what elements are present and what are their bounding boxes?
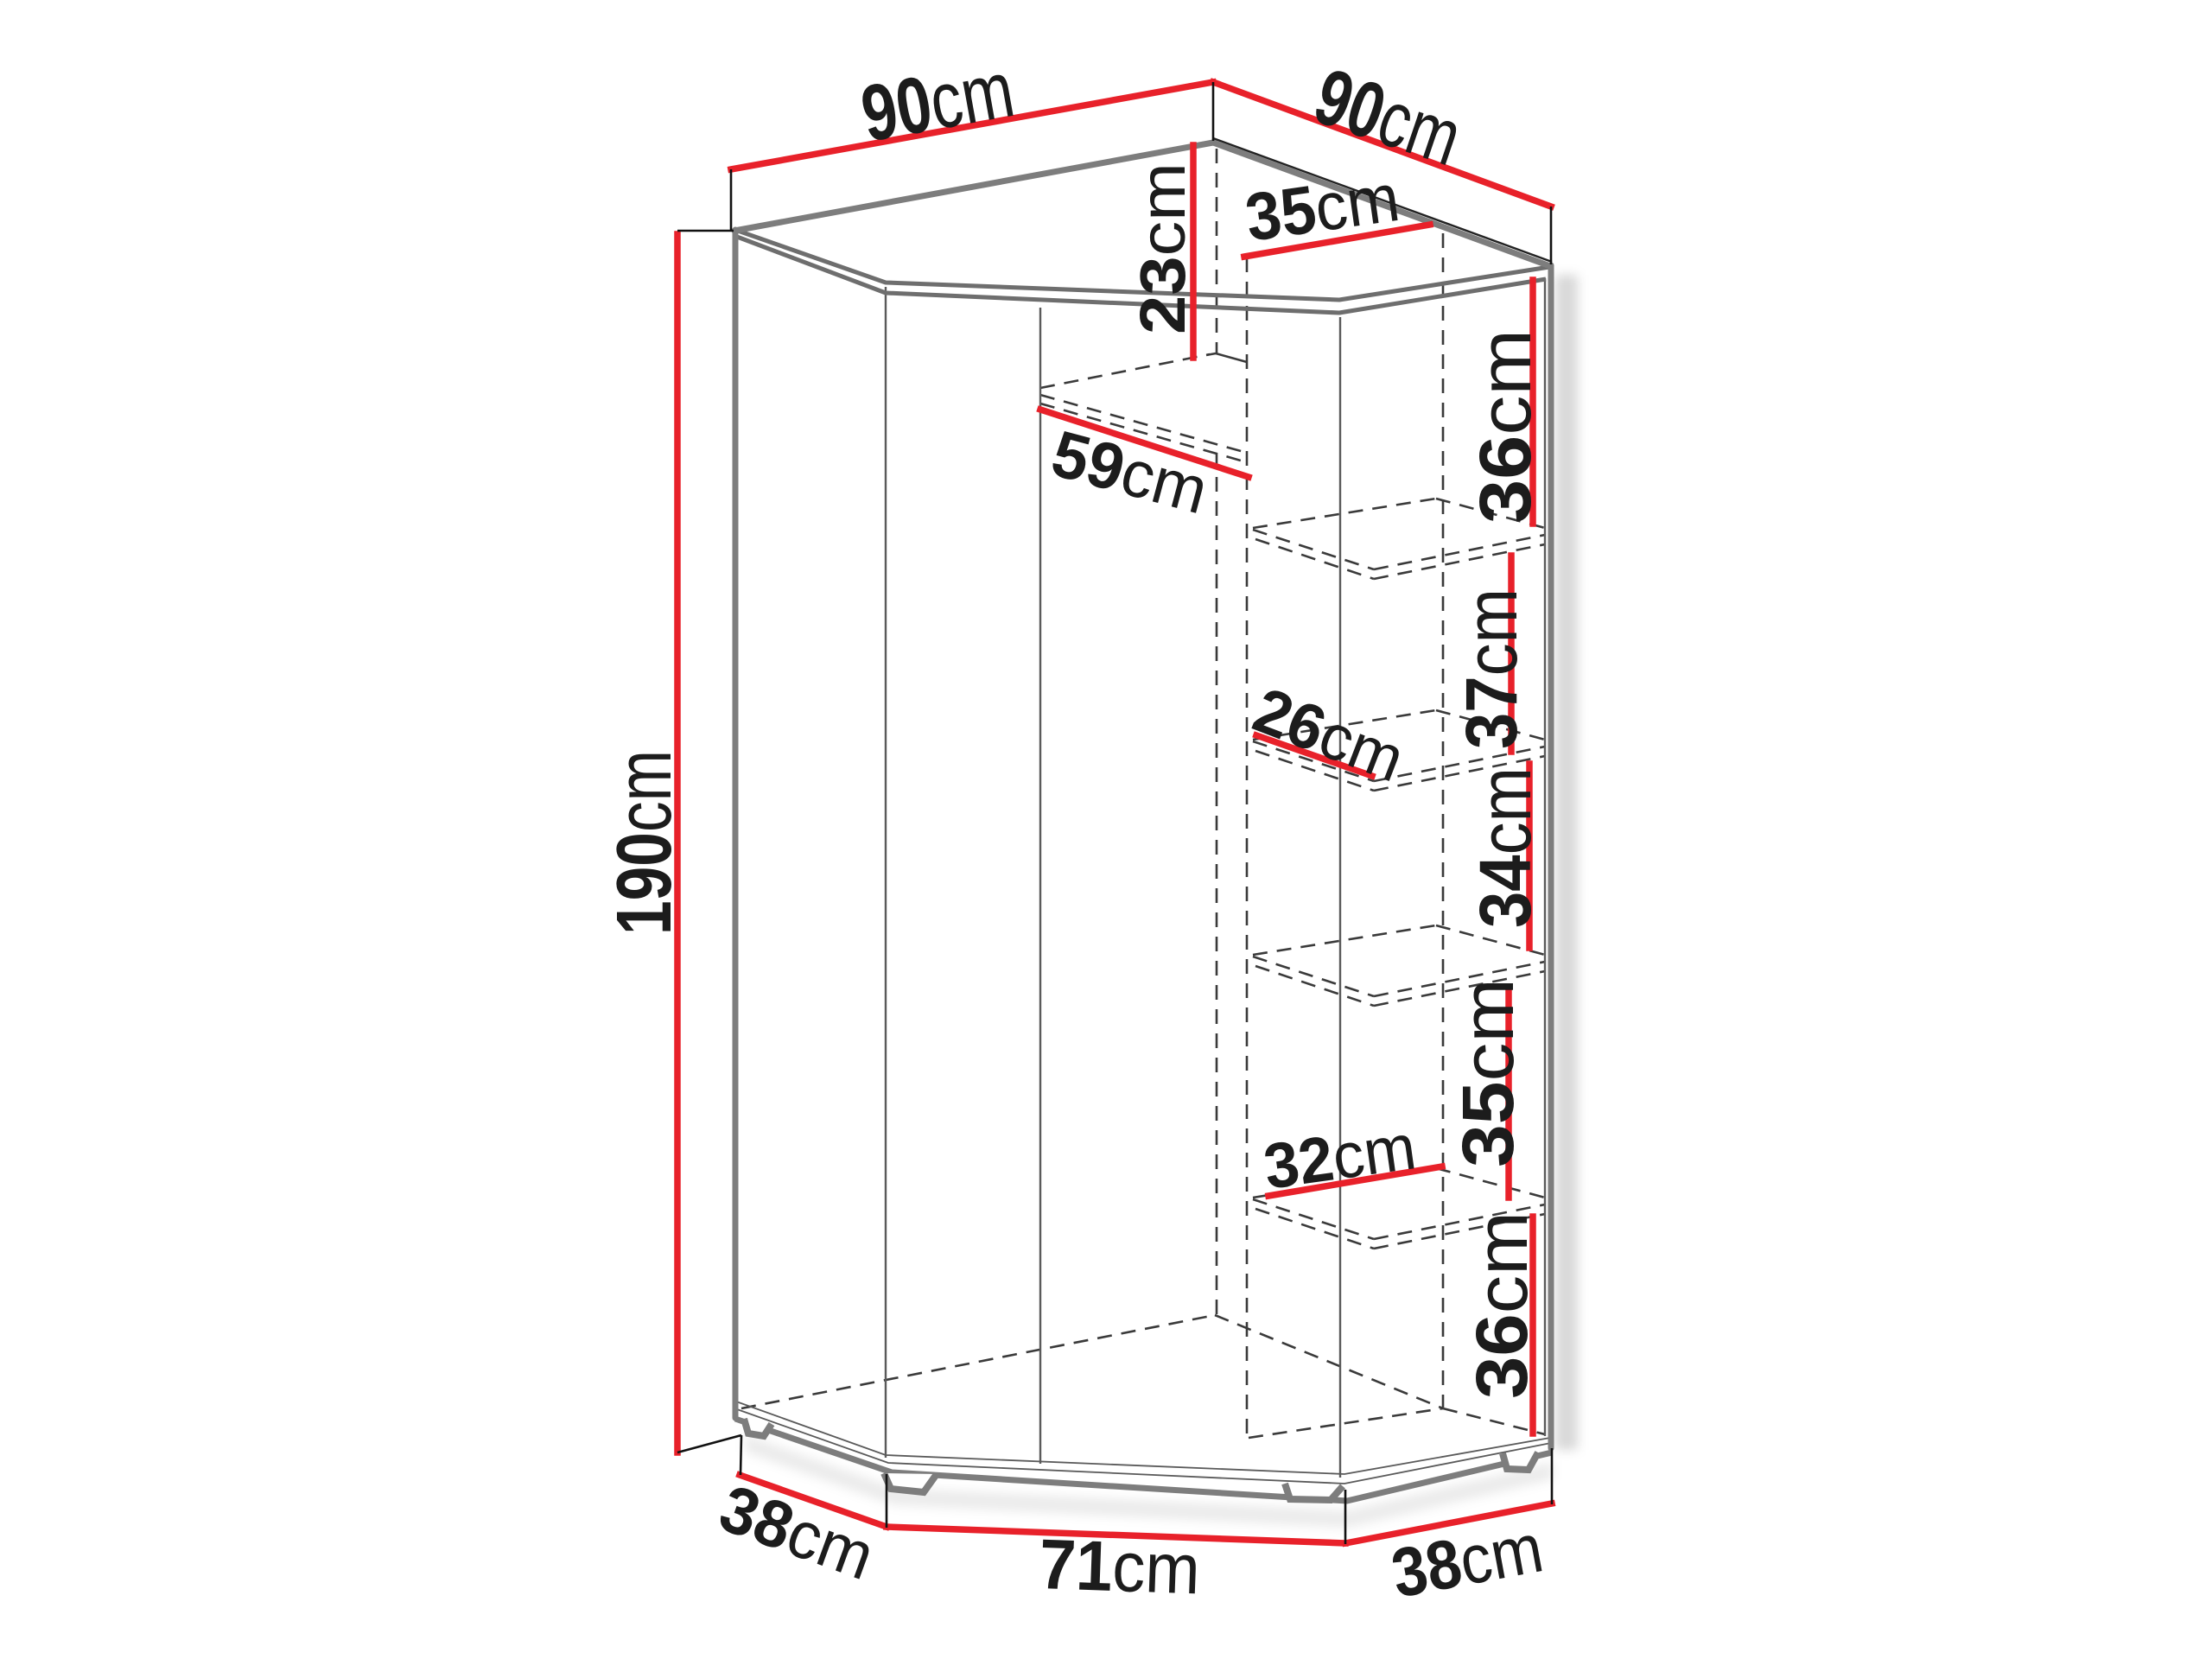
svg-text:36cm: 36cm bbox=[1465, 329, 1546, 524]
svg-text:35cm: 35cm bbox=[1447, 978, 1529, 1167]
svg-text:23cm: 23cm bbox=[1127, 162, 1198, 334]
svg-text:190cm: 190cm bbox=[601, 750, 688, 935]
svg-text:36cm: 36cm bbox=[1461, 1211, 1542, 1399]
svg-text:71cm: 71cm bbox=[1038, 1525, 1201, 1609]
svg-text:37cm: 37cm bbox=[1451, 588, 1532, 749]
svg-text:34cm: 34cm bbox=[1465, 767, 1546, 928]
